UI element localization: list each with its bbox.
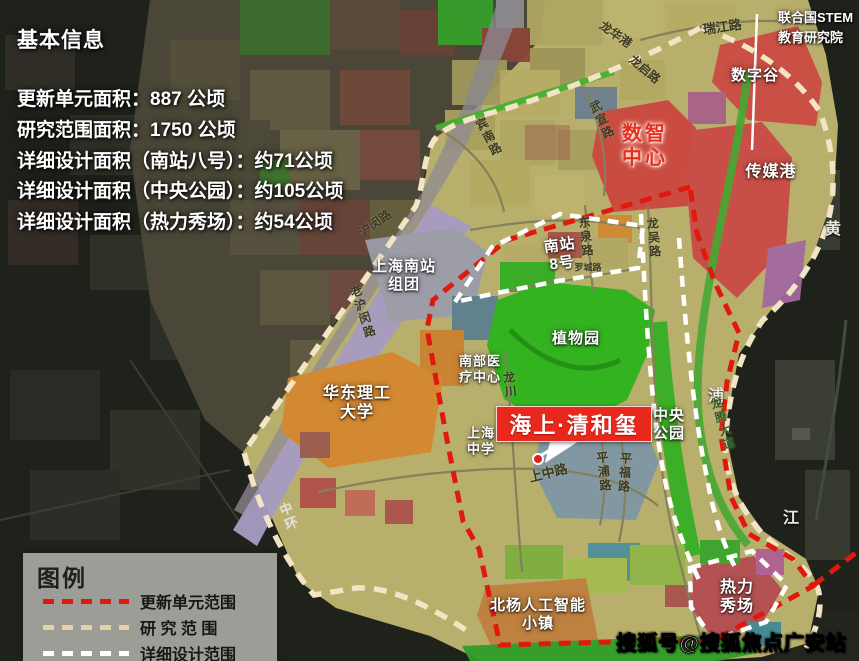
map-block xyxy=(525,125,570,160)
info-line: 详细设计面积（南站八号）：约71公顷 xyxy=(17,146,333,173)
legend-label: 研 究 范 围 xyxy=(140,615,217,639)
zone-label-botanical-garden: 植物园 xyxy=(552,330,600,348)
road-label-longchuan: 龙川 xyxy=(500,370,520,400)
project-banner-text: 海上·清和玺 xyxy=(509,408,638,440)
info-line: 详细设计面积（中央公园）：约105公顷 xyxy=(17,176,343,203)
zone-label-south-medical: 南部医 疗中心 xyxy=(459,353,501,384)
zone-label-shanghai-high-school: 上海 中学 xyxy=(467,425,495,456)
map-block xyxy=(300,478,336,508)
stem-institute-label: 联合国STEM 教育研究院 xyxy=(778,8,853,48)
map-block xyxy=(688,92,726,124)
map-block xyxy=(300,432,330,458)
map-block xyxy=(385,500,413,524)
map-block xyxy=(10,370,100,440)
river-label-huang: 黄 xyxy=(825,215,841,239)
map-block xyxy=(775,360,835,460)
zone-label-south-station-cluster: 上海南站 组团 xyxy=(372,258,436,294)
map-block xyxy=(90,235,150,290)
map-block xyxy=(805,470,850,560)
watermark: 搜狐号@搜狐焦点广安站 xyxy=(616,627,847,656)
map-block xyxy=(330,0,400,50)
map-block xyxy=(762,240,806,308)
zone-label-ecust: 华东理工 大学 xyxy=(323,384,391,422)
info-line: 研究范围面积：1750 公顷 xyxy=(17,115,236,142)
info-panel-title: 基本信息 xyxy=(17,24,105,54)
road-label-luocheng: 罗城路 xyxy=(574,261,601,274)
planning-map-screenshot: 基本信息 更新单元面积：887 公顷 研究范围面积：1750 公顷 详细设计面积… xyxy=(0,0,859,661)
zone-label-central-park: 中央 公园 xyxy=(653,407,685,443)
map-block xyxy=(260,270,330,325)
river-label-jiang: 江 xyxy=(783,504,799,528)
project-banner: 海上·清和玺 xyxy=(496,406,652,442)
map-block xyxy=(535,175,585,215)
info-line: 更新单元面积：887 公顷 xyxy=(17,84,225,111)
legend-item-research: 研 究 范 围 xyxy=(43,619,217,635)
map-block xyxy=(360,130,420,180)
map-block xyxy=(527,0,602,45)
info-line: 详细设计面积（热力秀场）：约54公顷 xyxy=(17,207,333,234)
site-location-dot xyxy=(533,454,543,464)
legend-label: 详细设计范围 xyxy=(140,641,236,661)
legend-panel: 图例 更新单元范围 研 究 范 围 详细设计范围 xyxy=(23,553,277,661)
map-block xyxy=(505,545,563,579)
legend-label: 更新单元范围 xyxy=(140,589,236,613)
legend-swatch-detail-design xyxy=(43,651,129,656)
legend-title: 图例 xyxy=(37,559,87,593)
map-block xyxy=(30,470,120,540)
legend-swatch-research xyxy=(43,625,129,630)
legend-item-detail-design: 详细设计范围 xyxy=(43,645,236,661)
map-block xyxy=(240,0,330,55)
map-block xyxy=(792,428,810,440)
legend-item-update-unit: 更新单元范围 xyxy=(43,593,236,609)
road-label-longwu: 龙吴路 xyxy=(644,216,665,259)
map-block xyxy=(110,410,200,490)
map-block xyxy=(345,490,375,516)
zone-label-media-port: 传媒港 xyxy=(745,162,796,181)
zone-label-digital-center: 数智 中心 xyxy=(622,122,668,170)
legend-swatch-update-unit xyxy=(43,599,129,604)
zone-label-digital-valley: 数字谷 xyxy=(731,67,779,85)
zone-label-thermal-show: 热力 秀场 xyxy=(720,578,754,616)
road-label-pingfu: 平福路 xyxy=(615,451,635,494)
zone-label-beiyang-ai-town: 北杨人工智能 小镇 xyxy=(490,597,586,633)
map-block xyxy=(340,70,410,125)
